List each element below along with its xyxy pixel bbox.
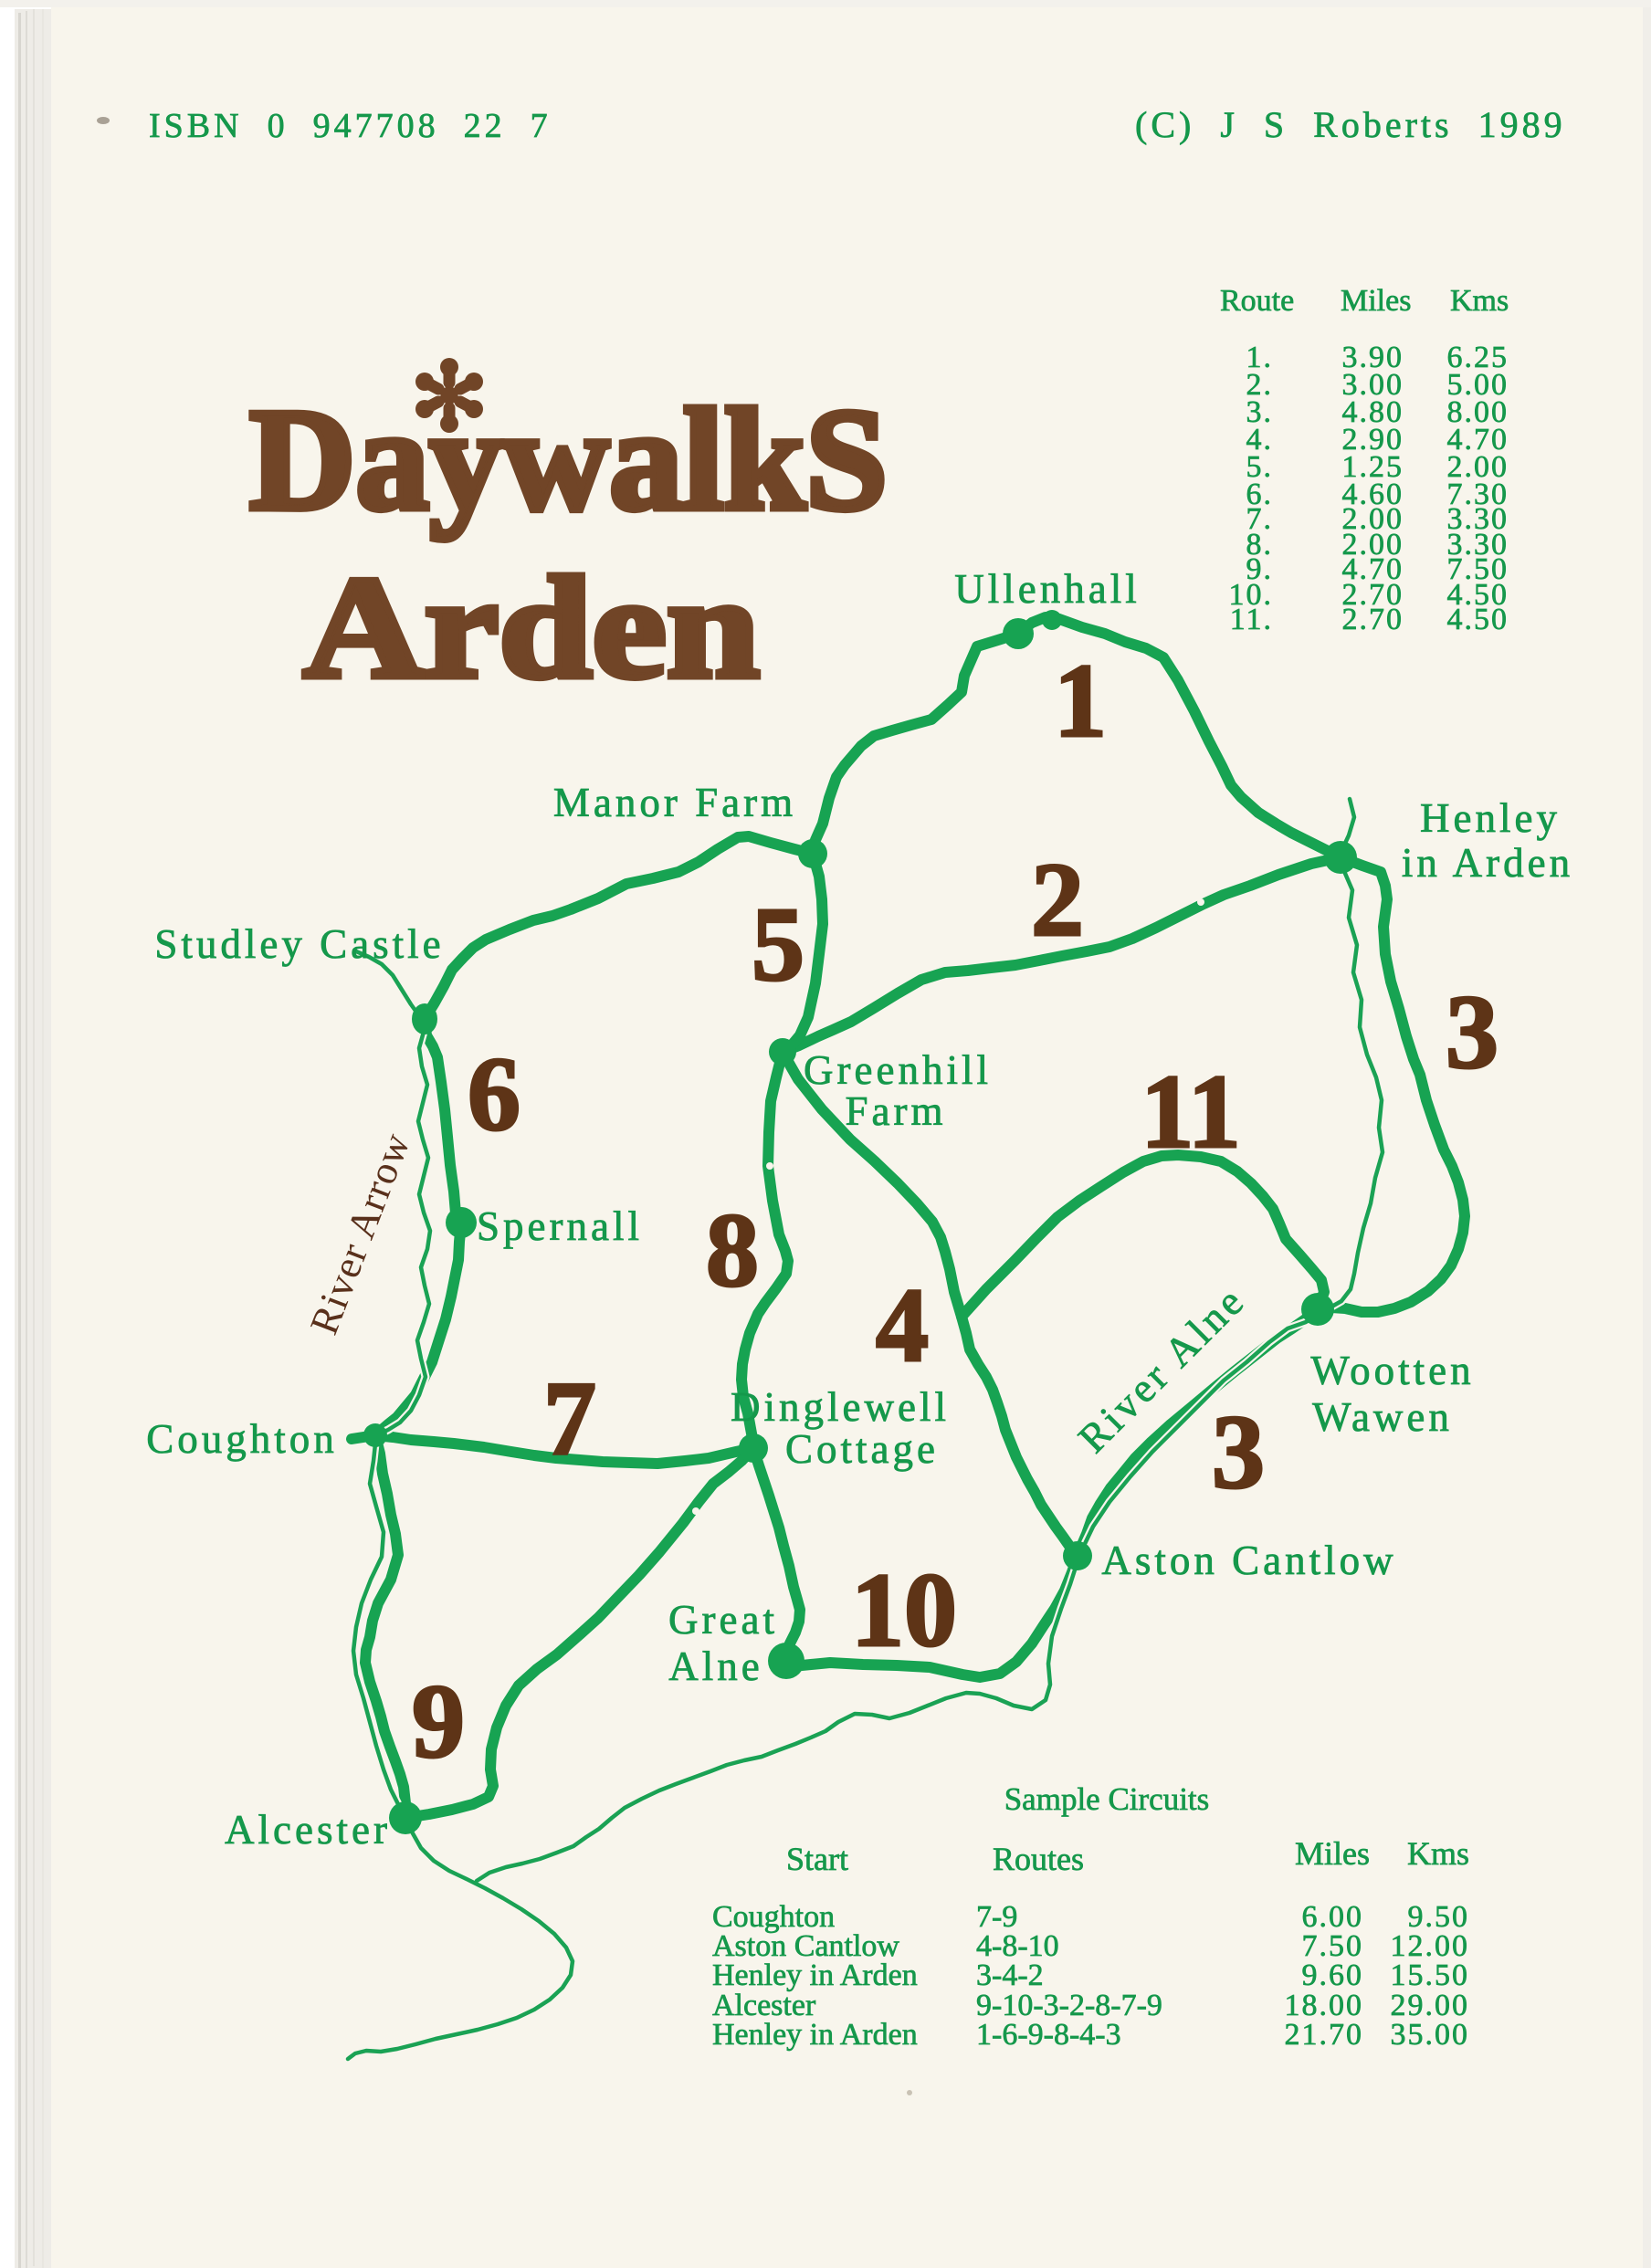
svg-text:Miles: Miles bbox=[1295, 1835, 1370, 1872]
svg-text:Kms: Kms bbox=[1407, 1835, 1469, 1872]
svg-text:Cottage: Cottage bbox=[785, 1426, 939, 1472]
svg-text:Greenhill: Greenhill bbox=[804, 1047, 992, 1093]
svg-text:9: 9 bbox=[412, 1664, 465, 1780]
svg-text:Ullenhall: Ullenhall bbox=[954, 566, 1140, 612]
svg-text:11: 11 bbox=[1141, 1054, 1241, 1171]
svg-text:Routes: Routes bbox=[993, 1841, 1084, 1877]
svg-text:7: 7 bbox=[543, 1360, 596, 1477]
svg-text:Spernall: Spernall bbox=[477, 1203, 643, 1249]
svg-text:4.50: 4.50 bbox=[1447, 603, 1509, 636]
svg-text:Henley: Henley bbox=[1420, 795, 1561, 841]
svg-text:Dinglewell: Dinglewell bbox=[731, 1384, 950, 1430]
svg-text:Henley in Arden: Henley in Arden bbox=[712, 2018, 918, 2052]
svg-text:Miles: Miles bbox=[1341, 284, 1411, 318]
svg-text:Great: Great bbox=[668, 1597, 778, 1643]
svg-text:4: 4 bbox=[876, 1267, 929, 1384]
svg-text:2.70: 2.70 bbox=[1342, 603, 1404, 636]
svg-text:15.50: 15.50 bbox=[1391, 1958, 1470, 1992]
svg-text:Studley Castle: Studley Castle bbox=[154, 921, 444, 967]
svg-text:Alne: Alne bbox=[668, 1643, 762, 1689]
svg-text:Farm: Farm bbox=[846, 1088, 947, 1134]
svg-text:9.60: 9.60 bbox=[1302, 1958, 1364, 1992]
svg-text:Kms: Kms bbox=[1450, 284, 1509, 318]
svg-text:1: 1 bbox=[1054, 643, 1107, 760]
svg-text:Arden: Arden bbox=[303, 546, 760, 709]
svg-text:6: 6 bbox=[468, 1036, 521, 1153]
svg-text:Wawen: Wawen bbox=[1312, 1394, 1453, 1440]
svg-text:Route: Route bbox=[1220, 284, 1294, 318]
svg-text:3-4-2: 3-4-2 bbox=[976, 1958, 1044, 1992]
svg-text:5: 5 bbox=[752, 887, 804, 1003]
svg-text:Coughton: Coughton bbox=[146, 1416, 338, 1462]
svg-text:Wootten: Wootten bbox=[1310, 1348, 1474, 1393]
svg-text:8: 8 bbox=[706, 1192, 759, 1309]
svg-text:Sample Circuits: Sample Circuits bbox=[1004, 1781, 1210, 1817]
svg-text:Manor Farm: Manor Farm bbox=[553, 780, 796, 825]
svg-text:3: 3 bbox=[1212, 1394, 1265, 1511]
svg-text:ISBN 0 947708 22 7: ISBN 0 947708 22 7 bbox=[149, 107, 552, 145]
svg-text:21.70: 21.70 bbox=[1285, 2018, 1364, 2052]
svg-text:1-6-9-8-4-3: 1-6-9-8-4-3 bbox=[976, 2018, 1121, 2052]
svg-text:(C) J S Roberts 1989: (C) J S Roberts 1989 bbox=[1135, 104, 1566, 145]
svg-text:10: 10 bbox=[851, 1552, 957, 1669]
svg-text:11.: 11. bbox=[1230, 603, 1273, 636]
svg-text:Start: Start bbox=[786, 1841, 848, 1877]
svg-text:Henley in Arden: Henley in Arden bbox=[712, 1958, 918, 1992]
svg-text:Alcester: Alcester bbox=[225, 1807, 391, 1853]
svg-text:2: 2 bbox=[1031, 842, 1084, 959]
svg-text:in Arden: in Arden bbox=[1402, 840, 1573, 886]
svg-text:3: 3 bbox=[1446, 974, 1499, 1091]
svg-text:35.00: 35.00 bbox=[1391, 2018, 1470, 2052]
svg-text:Aston Cantlow: Aston Cantlow bbox=[1101, 1538, 1396, 1583]
svg-text:DaywalkS: DaywalkS bbox=[249, 378, 888, 541]
